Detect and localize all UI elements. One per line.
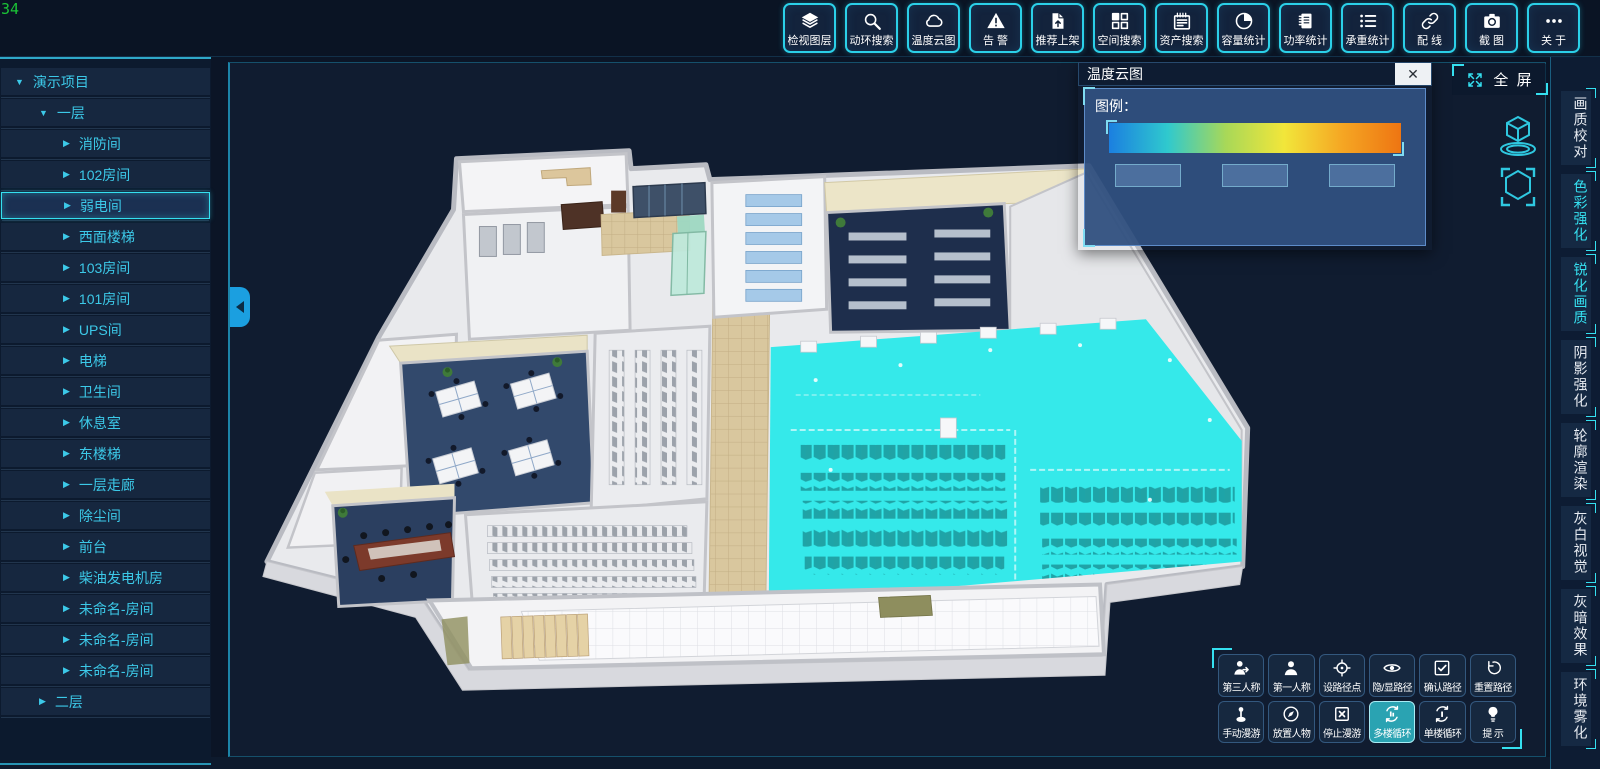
- tree-expand-icon[interactable]: ▶: [63, 510, 70, 521]
- single-floor-loop-icon: [1432, 704, 1452, 724]
- 3d-cube-view-icon[interactable]: [1492, 113, 1544, 159]
- display-effect-label: 灰暗效果: [1573, 594, 1589, 658]
- tree-item-label: 二层: [55, 692, 83, 712]
- roam-button[interactable]: 隐/显路径: [1369, 654, 1415, 697]
- asset-search-icon: [1171, 10, 1193, 32]
- tree-item[interactable]: ▶ 电梯: [1, 347, 210, 374]
- tree-expand-icon[interactable]: ▶: [63, 634, 70, 645]
- toolbar-button[interactable]: 功率统计: [1279, 3, 1332, 53]
- toolbar-button-label: 截 图: [1479, 32, 1504, 48]
- tree-item[interactable]: ▶ 103房间: [1, 254, 210, 281]
- toolbar-button[interactable]: 温度云图: [907, 3, 960, 53]
- tree-item[interactable]: ▶ 未命名-房间: [1, 657, 210, 684]
- tree-item-label: 未命名-房间: [79, 630, 154, 650]
- toolbar-button-label: 空间搜索: [1098, 32, 1142, 48]
- display-effects-sidebar: 画质校对 色彩强化 锐化画质 阴影强化 轮廓渲染 灰白视觉 灰暗效果 环境雾化: [1550, 57, 1600, 769]
- toolbar-button-label: 检视图层: [788, 32, 832, 48]
- toolbar-button-label: 功率统计: [1284, 32, 1328, 48]
- tree-expand-icon[interactable]: ▶: [63, 293, 70, 304]
- tree-item[interactable]: ▶ 未命名-房间: [1, 626, 210, 653]
- tree-expand-icon[interactable]: ▶: [63, 479, 70, 490]
- display-effect-button[interactable]: 锐化画质: [1561, 257, 1591, 331]
- tree-item[interactable]: ▶ 前台: [1, 533, 210, 560]
- tree-item-label: 未命名-房间: [79, 599, 154, 619]
- legend-label: 图例：: [1095, 96, 1415, 116]
- tree-item-label: 弱电间: [80, 196, 122, 216]
- roam-button-label: 隐/显路径: [1372, 679, 1412, 694]
- roam-toolbar: 第三人称 第一人称 设路径点 隐/显路径 确认路径 重置路径 手动漫游: [1214, 650, 1520, 747]
- toolbar-button[interactable]: 关 于: [1527, 3, 1580, 53]
- toolbar-button-label: 温度云图: [912, 32, 956, 48]
- display-effect-button[interactable]: 阴影强化: [1561, 340, 1591, 414]
- toolbar-button-label: 容量统计: [1222, 32, 1266, 48]
- temperature-gradient-bar: [1109, 123, 1401, 153]
- tree-item[interactable]: ▶ 休息室: [1, 409, 210, 436]
- tree-item-label: 演示项目: [33, 72, 89, 92]
- tree-expand-icon[interactable]: ▶: [63, 665, 70, 676]
- toolbar-button-label: 配 线: [1417, 32, 1442, 48]
- display-effect-label: 环境雾化: [1573, 677, 1589, 741]
- layer-button[interactable]: [1222, 164, 1288, 187]
- tree-item[interactable]: ▶ 一层走廊: [1, 471, 210, 498]
- display-effect-label: 画质校对: [1573, 96, 1589, 160]
- roam-button[interactable]: 提 示: [1470, 701, 1516, 744]
- roam-button[interactable]: 放置人物: [1268, 701, 1314, 744]
- tree-expand-icon[interactable]: ▶: [63, 572, 70, 583]
- display-effect-label: 轮廓渲染: [1573, 428, 1589, 492]
- temp-panel-body: 图例：: [1084, 88, 1426, 246]
- search-icon: [861, 10, 883, 32]
- fullscreen-button[interactable]: 全 屏: [1452, 64, 1548, 95]
- toolbar-button[interactable]: 告 警: [969, 3, 1022, 53]
- roam-button-label: 停止漫游: [1323, 725, 1361, 740]
- roam-button[interactable]: 手动漫游: [1218, 701, 1264, 744]
- sidebar-collapse-handle[interactable]: [230, 287, 250, 327]
- toolbar-button-label: 关 于: [1541, 32, 1566, 48]
- toolbar-button[interactable]: 截 图: [1465, 3, 1518, 53]
- tree-expand-icon[interactable]: ▶: [63, 169, 70, 180]
- display-effect-label: 灰白视觉: [1573, 511, 1589, 575]
- joystick-icon: [1231, 704, 1251, 724]
- display-effect-button[interactable]: 灰白视觉: [1561, 506, 1591, 580]
- tree-expand-icon[interactable]: ▼: [39, 108, 48, 118]
- roam-button[interactable]: 多楼循环: [1369, 701, 1415, 744]
- waypoint-icon: [1332, 658, 1352, 678]
- display-effect-button[interactable]: 环境雾化: [1561, 672, 1591, 746]
- tree-item-label: 东楼梯: [79, 444, 121, 464]
- roam-button-label: 确认路径: [1424, 679, 1462, 694]
- wiring-icon: [1419, 10, 1441, 32]
- reset-icon: [1483, 658, 1503, 678]
- toolbar-button-label: 动环搜索: [850, 32, 894, 48]
- roam-button-label: 单楼循环: [1424, 725, 1462, 740]
- tree-expand-icon[interactable]: ▶: [63, 324, 70, 335]
- tree-expand-icon[interactable]: ▶: [63, 603, 70, 614]
- toolbar-button[interactable]: 资产搜索: [1155, 3, 1208, 53]
- fullscreen-label: 全 屏: [1493, 69, 1533, 90]
- toolbar-button[interactable]: 承重统计: [1341, 3, 1394, 53]
- toolbar-button[interactable]: 推荐上架: [1031, 3, 1084, 53]
- roam-button-label: 提 示: [1482, 725, 1503, 740]
- tree-item[interactable]: ▼ 演示项目: [1, 68, 210, 95]
- tree-expand-icon[interactable]: ▶: [63, 386, 70, 397]
- cloud-icon: [923, 10, 945, 32]
- tree-expand-icon[interactable]: ▶: [63, 417, 70, 428]
- tree-item[interactable]: ▶ 弱电间: [1, 192, 210, 219]
- tree-item[interactable]: ▶ 二层: [1, 688, 210, 715]
- capacity-icon: [1233, 10, 1255, 32]
- tree-item[interactable]: ▶ UPS间: [1, 316, 210, 343]
- layer-button[interactable]: [1329, 164, 1395, 187]
- roam-button[interactable]: 第一人称: [1268, 654, 1314, 697]
- tree-item-label: 前台: [79, 537, 107, 557]
- display-effect-label: 阴影强化: [1573, 345, 1589, 409]
- toolbar-button-label: 资产搜索: [1160, 32, 1204, 48]
- tree-expand-icon[interactable]: ▶: [63, 355, 70, 366]
- top-toolbar: 34 检视图层 动环搜索 温度云图 告 警 推荐上架: [0, 0, 1600, 57]
- roam-button[interactable]: 停止漫游: [1319, 701, 1365, 744]
- fullscreen-icon: [1466, 71, 1484, 89]
- tree-expand-icon[interactable]: ▶: [64, 200, 71, 211]
- roam-button-label: 重置路径: [1474, 679, 1512, 694]
- tree-item-label: 休息室: [79, 413, 121, 433]
- temp-layer-buttons: [1115, 164, 1395, 187]
- close-icon[interactable]: ✕: [1395, 63, 1431, 85]
- tree-item[interactable]: ▼ 一层: [1, 99, 210, 126]
- first-person-icon: [1281, 658, 1301, 678]
- tree-expand-icon[interactable]: ▶: [63, 541, 70, 552]
- toolbar-button[interactable]: 配 线: [1403, 3, 1456, 53]
- toolbar-button[interactable]: 空间搜索: [1093, 3, 1146, 53]
- tree-expand-icon[interactable]: ▼: [15, 77, 24, 87]
- tree-item[interactable]: ▶ 东楼梯: [1, 440, 210, 467]
- tree-item[interactable]: ▶ 101房间: [1, 285, 210, 312]
- tree-expand-icon[interactable]: ▶: [63, 231, 70, 242]
- tree-item[interactable]: ▶ 102房间: [1, 161, 210, 188]
- collapse-arrow-icon: [236, 301, 244, 313]
- tree-item-label: 一层: [57, 103, 85, 123]
- tree-item-label: 除尘间: [79, 506, 121, 526]
- roam-button[interactable]: 单楼循环: [1419, 701, 1465, 744]
- display-effect-label: 色彩强化: [1573, 179, 1589, 243]
- hexagon-focus-icon[interactable]: [1494, 163, 1542, 211]
- eye-icon: [1382, 658, 1402, 678]
- tree-item-label: 西面楼梯: [79, 227, 135, 247]
- layers-icon: [799, 10, 821, 32]
- roam-button-label: 多楼循环: [1373, 725, 1411, 740]
- display-effect-button[interactable]: 轮廓渲染: [1561, 423, 1591, 497]
- toolbar-button-label: 承重统计: [1346, 32, 1390, 48]
- tree-item[interactable]: ▶ 消防间: [1, 130, 210, 157]
- about-icon: [1543, 10, 1565, 32]
- footer-strip: [0, 757, 1600, 769]
- temperature-cloud-panel: 温度云图 ✕ 图例：: [1078, 62, 1432, 250]
- roam-button-label: 放置人物: [1273, 725, 1311, 740]
- roam-button[interactable]: 第三人称: [1218, 654, 1264, 697]
- tree-item[interactable]: ▶ 卫生间: [1, 378, 210, 405]
- camera-icon: [1481, 10, 1503, 32]
- roam-button[interactable]: 设路径点: [1319, 654, 1365, 697]
- stop-icon: [1332, 704, 1352, 724]
- multi-floor-loop-icon: [1382, 704, 1402, 724]
- toolbar-button[interactable]: 检视图层: [783, 3, 836, 53]
- roam-button[interactable]: 重置路径: [1470, 654, 1516, 697]
- power-icon: [1295, 10, 1317, 32]
- weight-icon: [1357, 10, 1379, 32]
- display-effect-button[interactable]: 画质校对: [1561, 91, 1591, 165]
- layer-button[interactable]: [1115, 164, 1181, 187]
- confirm-icon: [1432, 658, 1452, 678]
- tree-item-label: 103房间: [79, 258, 130, 278]
- tree-item-label: 未命名-房间: [79, 661, 154, 681]
- tree-item-label: 柴油发电机房: [79, 568, 163, 588]
- temp-panel-titlebar[interactable]: 温度云图 ✕: [1078, 62, 1432, 86]
- tree-item-label: 消防间: [79, 134, 121, 154]
- tree-item-label: 卫生间: [79, 382, 121, 402]
- roam-button-label: 第三人称: [1222, 679, 1260, 694]
- temp-gradient-wrap: [1109, 123, 1401, 153]
- fps-counter: 34: [1, 0, 19, 18]
- dcim-3d-app: 34 检视图层 动环搜索 温度云图 告 警 推荐上架: [0, 0, 1600, 769]
- display-effect-button[interactable]: 色彩强化: [1561, 174, 1591, 248]
- temp-panel-title: 温度云图: [1087, 64, 1143, 84]
- bulb-icon: [1483, 704, 1503, 724]
- tree-expand-icon[interactable]: ▶: [63, 262, 70, 273]
- tree-item-label: 102房间: [79, 165, 130, 185]
- roam-button-label: 设路径点: [1323, 679, 1361, 694]
- tree-item[interactable]: ▶ 柴油发电机房: [1, 564, 210, 591]
- roam-button[interactable]: 确认路径: [1419, 654, 1465, 697]
- roam-button-label: 手动漫游: [1222, 725, 1260, 740]
- toolbar-button-label: 推荐上架: [1036, 32, 1080, 48]
- tree-expand-icon[interactable]: ▶: [39, 696, 46, 707]
- tree-item[interactable]: ▶ 未命名-房间: [1, 595, 210, 622]
- roam-button-label: 第一人称: [1273, 679, 1311, 694]
- space-search-icon: [1109, 10, 1131, 32]
- tree-expand-icon[interactable]: ▶: [63, 138, 70, 149]
- toolbar-button[interactable]: 动环搜索: [845, 3, 898, 53]
- project-tree-panel: ▼ 演示项目 ▼ 一层 ▶ 消防间 ▶ 102房间 ▶ 弱电间 ▶ 西面楼梯 ▶…: [0, 57, 211, 765]
- toolbar-button-label: 告 警: [983, 32, 1008, 48]
- top-toolbar-buttons: 检视图层 动环搜索 温度云图 告 警 推荐上架 空间搜索: [783, 3, 1580, 53]
- tree-item-label: 电梯: [79, 351, 107, 371]
- tree-expand-icon[interactable]: ▶: [63, 448, 70, 459]
- display-effect-label: 锐化画质: [1573, 262, 1589, 326]
- tree-item-label: 101房间: [79, 289, 130, 309]
- tree-item[interactable]: ▶ 西面楼梯: [1, 223, 210, 250]
- tree-item-label: UPS间: [79, 320, 122, 340]
- toolbar-button[interactable]: 容量统计: [1217, 3, 1270, 53]
- tree-item-label: 一层走廊: [79, 475, 135, 495]
- display-effect-button[interactable]: 灰暗效果: [1561, 589, 1591, 663]
- compass-icon: [1281, 704, 1301, 724]
- tree-item[interactable]: ▶ 除尘间: [1, 502, 210, 529]
- recommend-icon: [1047, 10, 1069, 32]
- third-person-icon: [1231, 658, 1251, 678]
- alert-icon: [985, 10, 1007, 32]
